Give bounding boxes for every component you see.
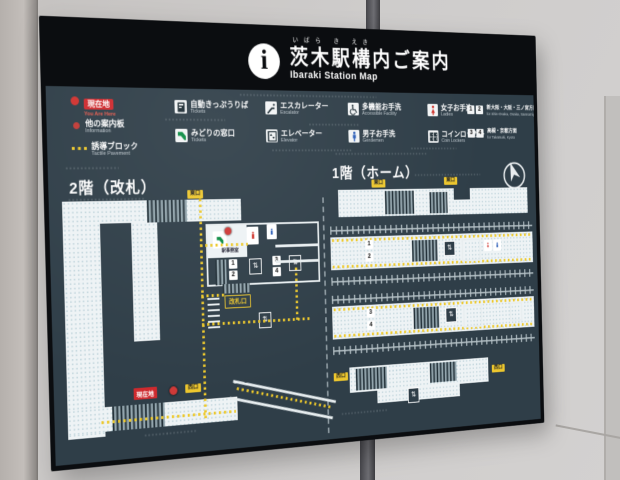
station-office-label: 駅事務室 bbox=[220, 248, 241, 256]
legend-item-information: 他の案内板 Information bbox=[71, 119, 125, 135]
legend-ja: 他の案内板 bbox=[85, 119, 124, 128]
mens-toilet-marker bbox=[493, 239, 501, 250]
tactile-pavement-icon bbox=[72, 147, 88, 150]
elevator-marker: ⇅ bbox=[249, 258, 262, 274]
legend-item-midori-madoguchi: みどりの窓口 Tickets bbox=[175, 129, 235, 144]
track-4-chip: 4 bbox=[476, 129, 483, 138]
platform-room-outline bbox=[461, 238, 480, 261]
accessible-toilet-marker bbox=[247, 227, 259, 245]
platform-chip: 1 bbox=[229, 259, 238, 269]
legend-item-accessible-facility: 多機能お手洗 Accessible Facility bbox=[348, 103, 402, 118]
platform-chip: 2 bbox=[229, 270, 238, 280]
legend-item-elevator: エレベーター Elevator bbox=[266, 129, 323, 144]
legend-en: Coin Lockers bbox=[442, 139, 485, 144]
legend-en: Information bbox=[85, 129, 124, 135]
braille-dots bbox=[164, 117, 225, 122]
elevator-marker: ⇅ bbox=[444, 241, 455, 256]
floor2-map: 駅事務室 1 2 ⇅ 3 4 ⇅ 改札口 ⇅ bbox=[62, 201, 322, 456]
ticket-machine-icon bbox=[174, 100, 187, 114]
track-2-chip: 2 bbox=[476, 105, 483, 114]
legend-ja: みどりの窓口 bbox=[191, 129, 235, 137]
mens-toilet-icon bbox=[348, 130, 359, 143]
legend-item-ladies: 女子お手洗 Ladies bbox=[427, 104, 472, 118]
elevator-marker: ⇅ bbox=[408, 387, 420, 403]
east-exit-label: 東口 bbox=[444, 177, 457, 185]
floor1-map: 東口 東口 1 2 ⇅ bbox=[329, 187, 536, 429]
you-are-here-dot-icon bbox=[70, 96, 79, 105]
legend-en: Elevator bbox=[281, 139, 323, 144]
track-number-chip: 2 bbox=[365, 252, 373, 261]
concourse-area bbox=[131, 222, 160, 341]
concourse-notch bbox=[454, 188, 470, 200]
womens-toilet-icon bbox=[427, 104, 438, 116]
braille-dots bbox=[65, 166, 119, 171]
track-number-chip: 3 bbox=[367, 308, 375, 317]
braille-dots bbox=[410, 146, 456, 150]
stairs-area bbox=[356, 367, 388, 391]
mens-toilet-marker bbox=[267, 224, 277, 239]
legend-en: Tickets bbox=[191, 138, 235, 143]
stairs-area bbox=[412, 240, 438, 262]
wall-corner-stripe bbox=[0, 0, 38, 480]
braille-dots bbox=[239, 92, 376, 99]
legend-ja: 多機能お手洗 bbox=[362, 103, 401, 111]
sign-title-group: i いばら き えき 茨木駅構内ご案内 Ibaraki Station Map bbox=[248, 34, 452, 85]
track-3-chip: 3 bbox=[468, 129, 475, 138]
sign-title-japanese: 茨木駅構内ご案内 bbox=[289, 44, 451, 72]
braille-dots bbox=[308, 122, 359, 127]
stairs-area bbox=[430, 361, 457, 382]
stairs-area bbox=[215, 259, 227, 285]
womens-toilet-marker bbox=[484, 240, 492, 252]
legend-item-you-are-here: 現在地 You Are Here bbox=[70, 94, 115, 118]
legend-ja: 誘導ブロック bbox=[91, 142, 138, 150]
legend-en: for Shin-Osaka, Osaka, Sannomiya bbox=[487, 112, 538, 116]
track-number-chip: 4 bbox=[367, 321, 375, 330]
legend-en: You Are Here bbox=[84, 112, 116, 118]
track-1-chip: 1 bbox=[467, 105, 474, 114]
midori-madoguchi-icon bbox=[175, 129, 188, 142]
information-icon: i bbox=[248, 43, 281, 79]
legend-en: Accessible Facility bbox=[362, 112, 401, 117]
legend-item-gentlemen: 男子お手洗 Gentlemen bbox=[348, 130, 395, 144]
track-number-chip: 1 bbox=[365, 240, 373, 249]
wall-seam-right bbox=[604, 96, 620, 480]
legend-item-ticket-machines: 自動きっぷうりば Tickets bbox=[174, 100, 248, 116]
escalator-icon bbox=[265, 101, 277, 114]
elevator-icon bbox=[266, 129, 278, 142]
you-are-here-marker: 現在地 bbox=[134, 387, 157, 400]
legend-en: Escalator bbox=[280, 111, 328, 117]
braille-dots bbox=[335, 152, 427, 157]
legend-item-tactile-pavement: 誘導ブロック Tactile Pavement bbox=[72, 142, 139, 157]
corridor bbox=[275, 243, 318, 263]
legend-item-direction-osaka: 1 2 新大阪・大阪・三ノ宮方面 for Shin-Osaka, Osaka, … bbox=[467, 105, 537, 116]
west-exit-label: 西口 bbox=[492, 364, 505, 372]
legend-item-direction-kyoto: 3 4 高槻・京都方面 for Takatsuki, Kyoto bbox=[468, 129, 517, 140]
sign-frame: i いばら き えき 茨木駅構内ご案内 Ibaraki Station Map bbox=[39, 16, 544, 472]
legend-ja: 高槻・京都方面 bbox=[487, 129, 517, 134]
corridor-west bbox=[230, 380, 336, 419]
tactile-path bbox=[201, 293, 227, 297]
information-dot-icon bbox=[73, 122, 80, 129]
you-are-here-dot bbox=[169, 386, 177, 395]
stairs-area bbox=[385, 191, 414, 215]
floor2-title: 2階（改札） bbox=[69, 174, 157, 199]
sign-panel: 現在地 You Are Here 他の案内板 Information 誘導ブロッ… bbox=[46, 86, 541, 466]
west-exit-label: 西口 bbox=[334, 372, 348, 381]
stairs-area bbox=[413, 306, 439, 329]
legend-en: Gentlemen bbox=[363, 139, 396, 144]
platform-chip: 4 bbox=[273, 267, 281, 277]
west-exit-label: 西口 bbox=[185, 383, 201, 392]
legend-ja: エレベーター bbox=[281, 129, 323, 137]
coin-locker-icon bbox=[428, 130, 439, 142]
east-exit-label: 東口 bbox=[187, 190, 203, 198]
wheelchair-icon bbox=[348, 103, 359, 116]
platform-room-outline bbox=[510, 302, 523, 322]
concourse-area bbox=[62, 201, 106, 440]
legend-ja: エスカレーター bbox=[280, 102, 328, 111]
east-exit-label: 東口 bbox=[371, 179, 385, 187]
legend-en: Tactile Pavement bbox=[92, 152, 139, 157]
platform-room-outline bbox=[463, 304, 482, 328]
ticket-gates bbox=[223, 283, 250, 294]
legend-item-escalator: エスカレーター Escalator bbox=[265, 101, 328, 116]
legend-ja: 自動きっぷうりば bbox=[190, 100, 248, 109]
elevator-marker: ⇅ bbox=[445, 307, 456, 323]
station-sign-board: i いばら き えき 茨木駅構内ご案内 Ibaraki Station Map bbox=[39, 16, 544, 472]
railway-track-2 bbox=[331, 269, 533, 286]
stairs-area bbox=[147, 200, 187, 223]
legend-en: for Takatsuki, Kyoto bbox=[487, 135, 517, 139]
ticket-gate-label: 改札口 bbox=[224, 294, 251, 308]
stairs-area bbox=[429, 192, 447, 213]
legend-en: Tickets bbox=[190, 110, 248, 116]
you-are-here-badge: 現在地 bbox=[84, 99, 114, 110]
legend-ja: 男子お手洗 bbox=[362, 130, 395, 138]
legend-ja: 新大阪・大阪・三ノ宮方面 bbox=[487, 106, 538, 112]
